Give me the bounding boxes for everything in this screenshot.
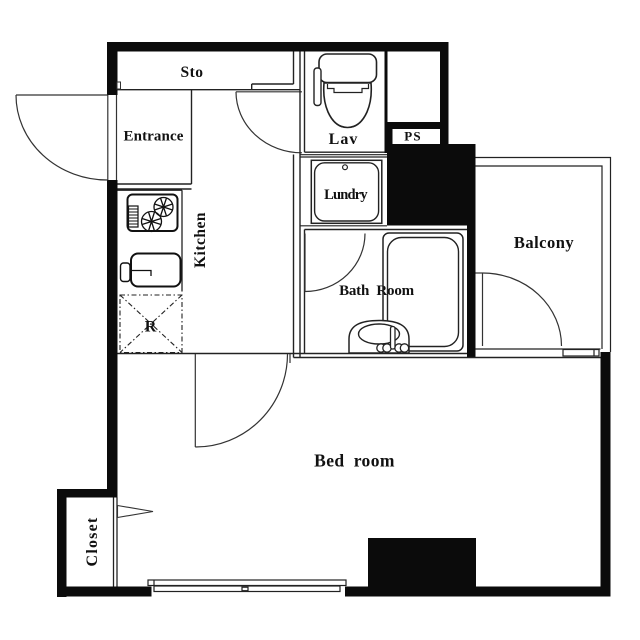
svg-text:Kitchen: Kitchen [192, 212, 209, 268]
svg-text:Closet: Closet [84, 517, 101, 567]
svg-text:Balcony: Balcony [514, 233, 575, 252]
svg-text:PS: PS [404, 129, 422, 144]
svg-text:Sto: Sto [180, 64, 203, 81]
svg-text:R: R [145, 319, 157, 336]
svg-text:Bath Room: Bath Room [339, 283, 415, 299]
svg-text:Lav: Lav [329, 131, 359, 148]
svg-text:Entrance: Entrance [124, 129, 184, 145]
svg-text:Lundry: Lundry [324, 187, 368, 203]
svg-text:Bed room: Bed room [314, 451, 395, 471]
